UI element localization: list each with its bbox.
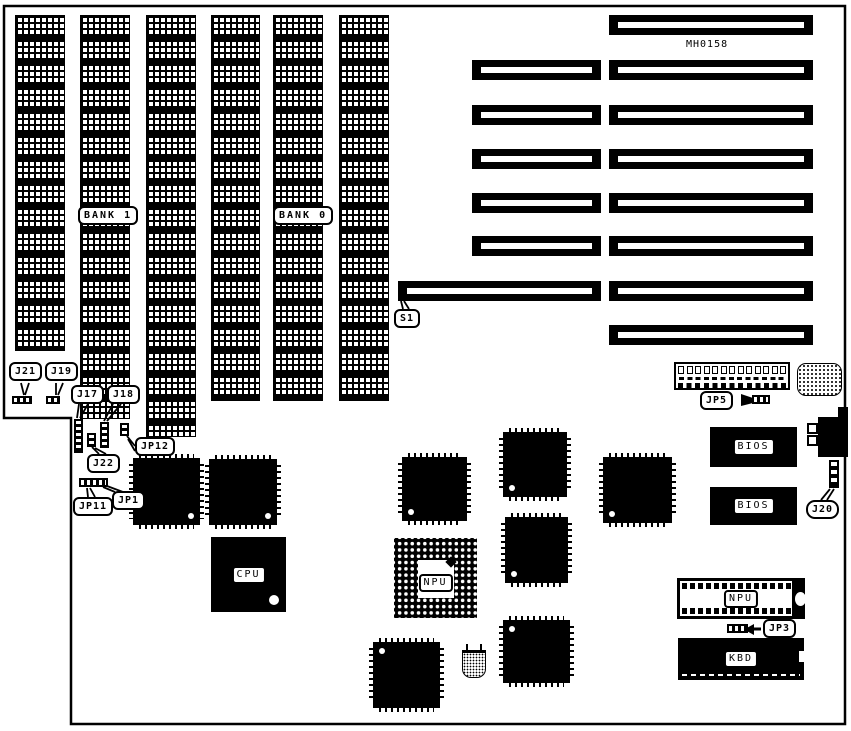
qfp-chip	[505, 517, 568, 583]
expansion-slot	[609, 15, 813, 35]
j17-connector	[74, 419, 83, 453]
jp12-connector	[120, 423, 129, 436]
j21-callout: J21	[9, 362, 42, 381]
j17-callout: J17	[71, 385, 104, 404]
expansion-slot	[609, 193, 813, 213]
jp3-callout: JP3	[763, 619, 796, 638]
j19-connector	[46, 396, 60, 404]
qfp-chip	[402, 457, 467, 521]
npu-pga-label: NPU	[418, 574, 452, 592]
bios-upper-label: BIOS	[732, 438, 774, 456]
j22-callout: J22	[87, 454, 120, 473]
kbd-dashed-line	[682, 674, 800, 676]
jp11-jp1-connector	[79, 478, 108, 487]
bank0-label: BANK 0	[273, 206, 333, 225]
keyboard-din-connector-step	[838, 407, 848, 418]
s1-callout: S1	[394, 309, 420, 328]
kbd-label: KBD	[724, 650, 758, 668]
qfp-chip	[133, 458, 200, 525]
j20-callout: J20	[806, 500, 839, 519]
pin1-dot	[265, 513, 271, 519]
pin1-dot	[609, 511, 615, 517]
expansion-slot	[609, 325, 813, 345]
header-squares	[678, 366, 786, 374]
expansion-slot	[472, 236, 601, 256]
bios-lower-label: BIOS	[732, 497, 774, 515]
motherboard-diagram: MH0158 CPU NPU BIOS BIOS NPU KBD	[0, 0, 851, 731]
npu-pga-socket: NPU	[394, 538, 477, 618]
header-dashes	[679, 377, 785, 380]
memory-column-3	[146, 15, 196, 437]
jp11-callout: JP11	[73, 497, 113, 516]
expansion-slot	[609, 236, 813, 256]
jp3-connector	[727, 624, 748, 633]
pin1-dot	[408, 509, 414, 515]
cpu-label: CPU	[231, 566, 265, 584]
j20-connector	[829, 460, 839, 488]
j19-callout: J19	[45, 362, 78, 381]
expansion-slot	[472, 149, 601, 169]
memory-column-4	[211, 15, 260, 401]
dip-end-block	[792, 581, 802, 616]
pin1-dot	[509, 485, 515, 491]
stippled-component	[797, 363, 842, 396]
qfp-chip	[503, 432, 567, 497]
j18-callout: J18	[107, 385, 140, 404]
crystal-oscillator	[462, 644, 486, 678]
s1-slot	[398, 281, 601, 301]
expansion-slot	[472, 193, 601, 213]
dip-notch	[795, 592, 806, 606]
jp12-callout: JP12	[135, 437, 175, 456]
expansion-slot	[472, 60, 601, 80]
pin1-dot	[379, 648, 385, 654]
din-pin	[807, 435, 818, 446]
dip-pins-bottom	[682, 608, 792, 614]
bios-chip-upper: BIOS	[710, 427, 797, 467]
qfp-chip	[603, 457, 672, 523]
header-pins	[678, 383, 786, 390]
expansion-slot	[472, 105, 601, 125]
j22-connector	[87, 433, 96, 447]
pin1-dot	[269, 595, 279, 605]
din-pin	[807, 423, 818, 434]
pin1-dot	[188, 513, 194, 519]
crystal-body	[462, 650, 486, 678]
expansion-slot	[609, 60, 813, 80]
j18-connector	[100, 422, 109, 448]
bios-chip-lower: BIOS	[710, 487, 797, 525]
jp5-connector	[752, 395, 770, 404]
qfp-chip	[209, 459, 277, 525]
memory-column-6	[339, 15, 389, 401]
cpu-chip: CPU	[211, 537, 286, 612]
expansion-slot	[609, 149, 813, 169]
memory-column-1	[15, 15, 65, 351]
npu-dip-socket: NPU	[677, 578, 805, 619]
jp1-callout: JP1	[112, 491, 145, 510]
qfp-chip	[373, 642, 440, 708]
keyboard-din-connector	[818, 417, 848, 457]
j21-connector	[12, 396, 32, 404]
dip-pins-top	[682, 583, 792, 589]
expansion-slot	[609, 105, 813, 125]
pin1-dot	[511, 571, 517, 577]
qfp-chip	[503, 620, 570, 683]
kbd-chip: KBD	[678, 638, 804, 680]
expansion-slot	[609, 281, 813, 301]
bank1-label: BANK 1	[78, 206, 138, 225]
pin-header-strip	[674, 362, 790, 390]
kbd-notch	[799, 651, 805, 662]
jp5-callout: JP5	[700, 391, 733, 410]
pin1-dot	[509, 626, 515, 632]
npu-dip-label: NPU	[724, 590, 758, 608]
model-number-text: MH0158	[686, 39, 728, 50]
